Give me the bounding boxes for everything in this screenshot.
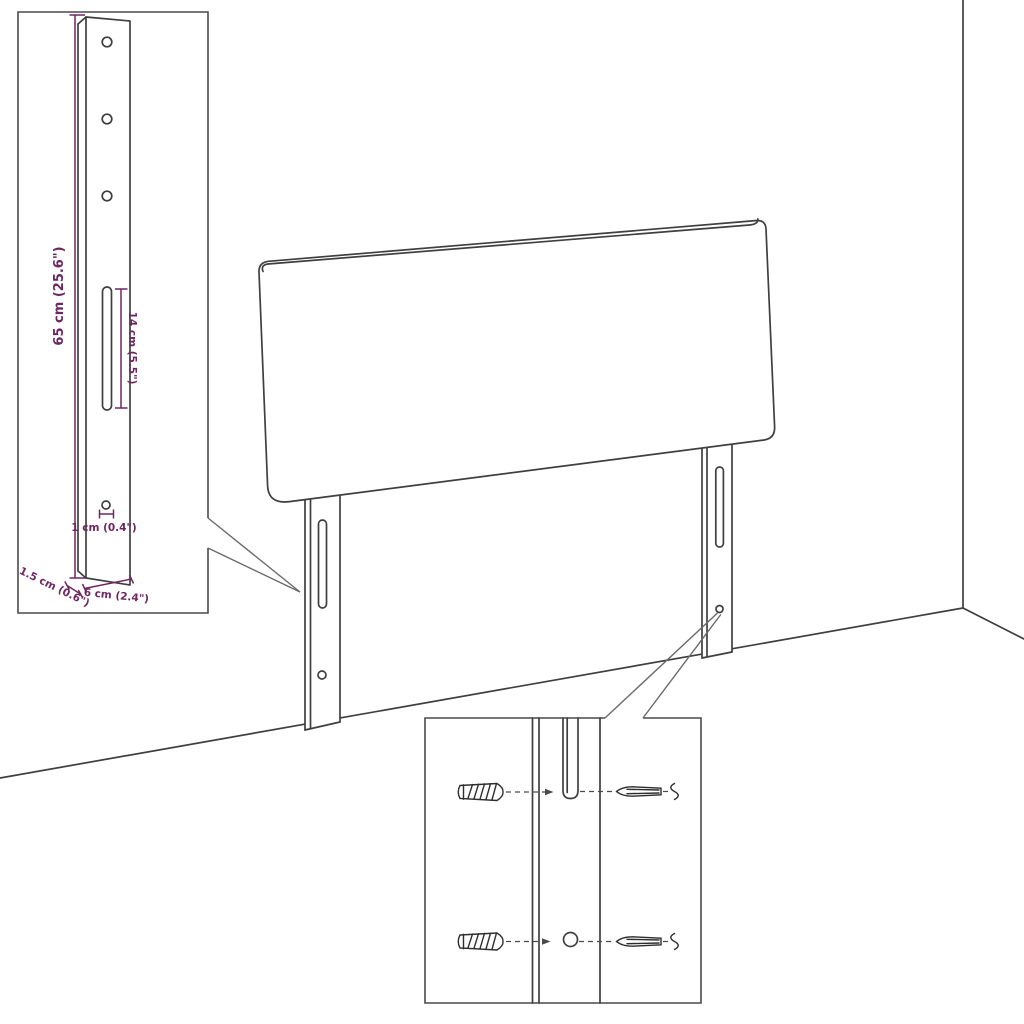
diagram-canvas: 65 cm (25.6") 14 cm (5.5") 1 cm (0.4") 1… (0, 0, 1024, 1024)
callout-to-left-leg (208, 518, 300, 592)
right-mounting-leg (702, 417, 732, 658)
leg-detail-bracket (78, 17, 130, 585)
leg-detail-inset: 65 cm (25.6") 14 cm (5.5") 1 cm (0.4") 1… (17, 12, 208, 613)
headboard-panel (259, 219, 775, 502)
dimension-label-leg-height: 65 cm (25.6") (52, 246, 67, 345)
hardware-detail-inset (425, 718, 701, 1003)
dimension-label-slot-length: 14 cm (5.5") (126, 312, 138, 385)
dimension-label-hole-size: 1 cm (0.4") (71, 522, 136, 534)
headboard-dimension-diagram: 65 cm (25.6") 14 cm (5.5") 1 cm (0.4") 1… (0, 0, 1024, 1024)
